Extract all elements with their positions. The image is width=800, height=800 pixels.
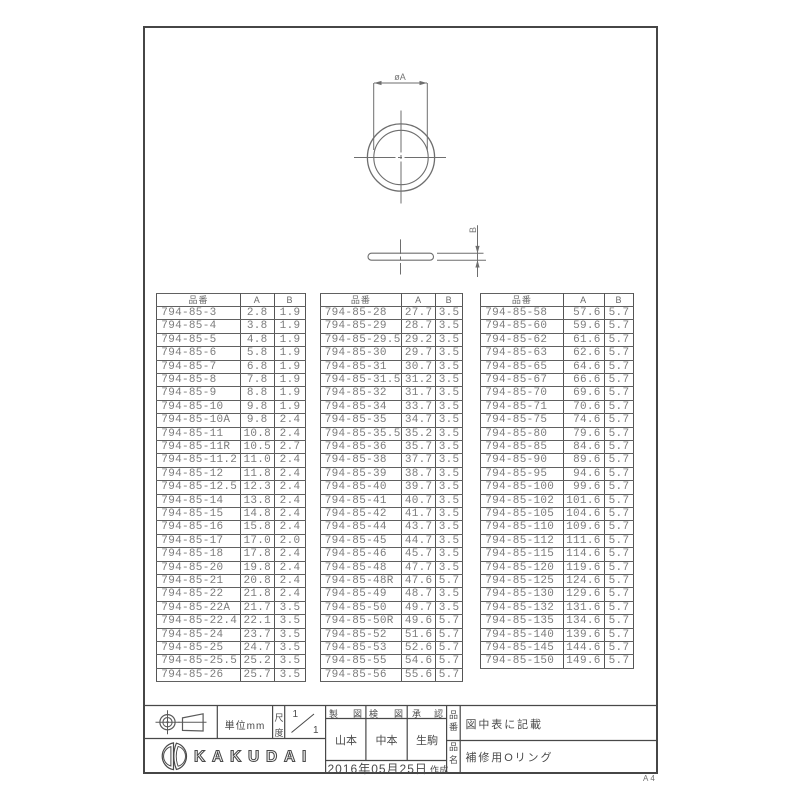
svg-text:KAKUDAI: KAKUDAI [194,749,313,766]
